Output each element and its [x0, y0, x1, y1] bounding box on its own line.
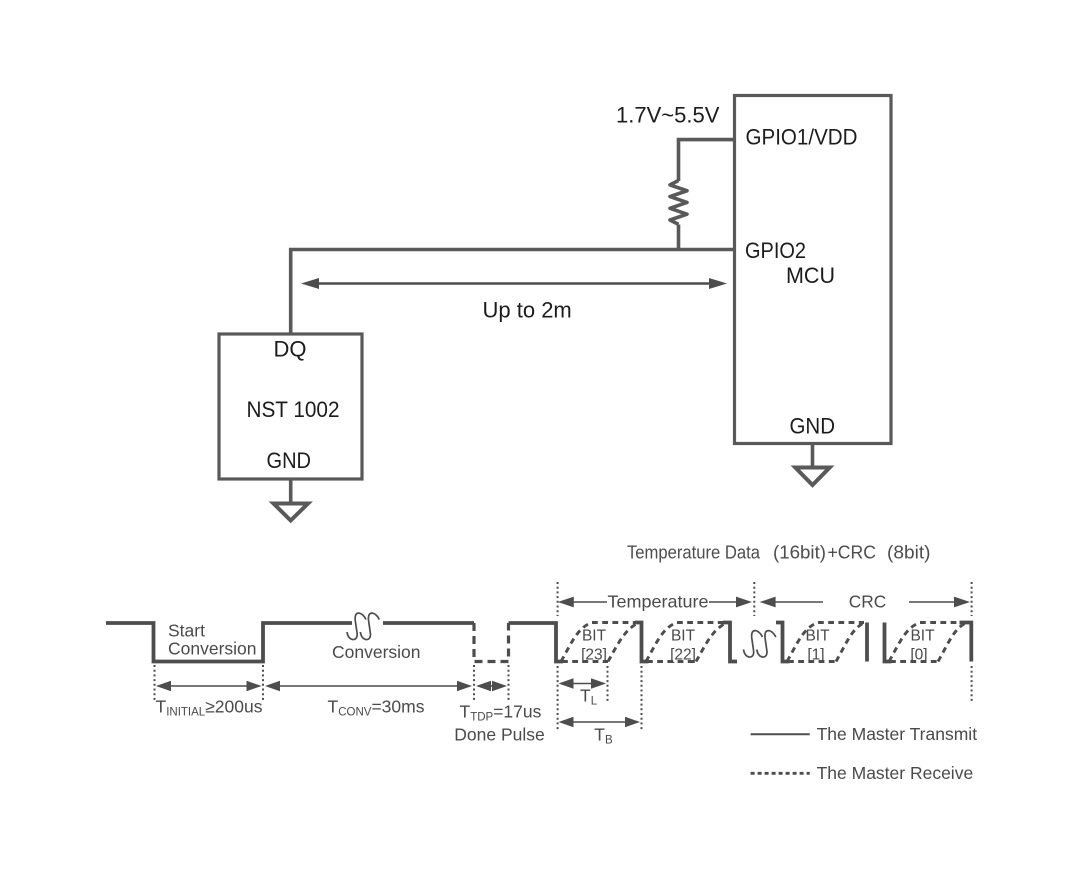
- svg-text:MCU: MCU: [786, 263, 835, 288]
- svg-text:NST 1002: NST 1002: [247, 397, 340, 422]
- svg-text:Temperature: Temperature: [608, 592, 709, 612]
- svg-text:DQ: DQ: [274, 337, 307, 362]
- svg-text:Up to 2m: Up to 2m: [483, 298, 572, 323]
- svg-text:BIT: BIT: [805, 628, 830, 645]
- svg-text:The Master Receive: The Master Receive: [817, 763, 974, 783]
- svg-text:GND: GND: [790, 413, 836, 438]
- svg-text:BIT: BIT: [582, 628, 607, 645]
- svg-text:CRC: CRC: [849, 592, 887, 612]
- svg-text:BIT: BIT: [910, 628, 935, 645]
- svg-text:[22]: [22]: [670, 647, 696, 664]
- svg-text:GND: GND: [267, 448, 312, 473]
- svg-text:GPIO1/VDD: GPIO1/VDD: [746, 124, 858, 149]
- svg-text:The Master Transmit: The Master Transmit: [817, 724, 978, 744]
- svg-text:[1]: [1]: [807, 647, 824, 664]
- svg-text:GPIO2: GPIO2: [745, 238, 806, 263]
- svg-text:[0]: [0]: [910, 647, 927, 664]
- svg-text:BIT: BIT: [671, 628, 696, 645]
- svg-text:1.7V~5.5V: 1.7V~5.5V: [616, 103, 720, 128]
- svg-text:Done Pulse: Done Pulse: [454, 725, 544, 745]
- svg-text:Conversion: Conversion: [168, 638, 257, 658]
- svg-text:Conversion: Conversion: [332, 642, 421, 662]
- svg-text:Start: Start: [168, 620, 205, 640]
- svg-text:[23]: [23]: [581, 647, 607, 664]
